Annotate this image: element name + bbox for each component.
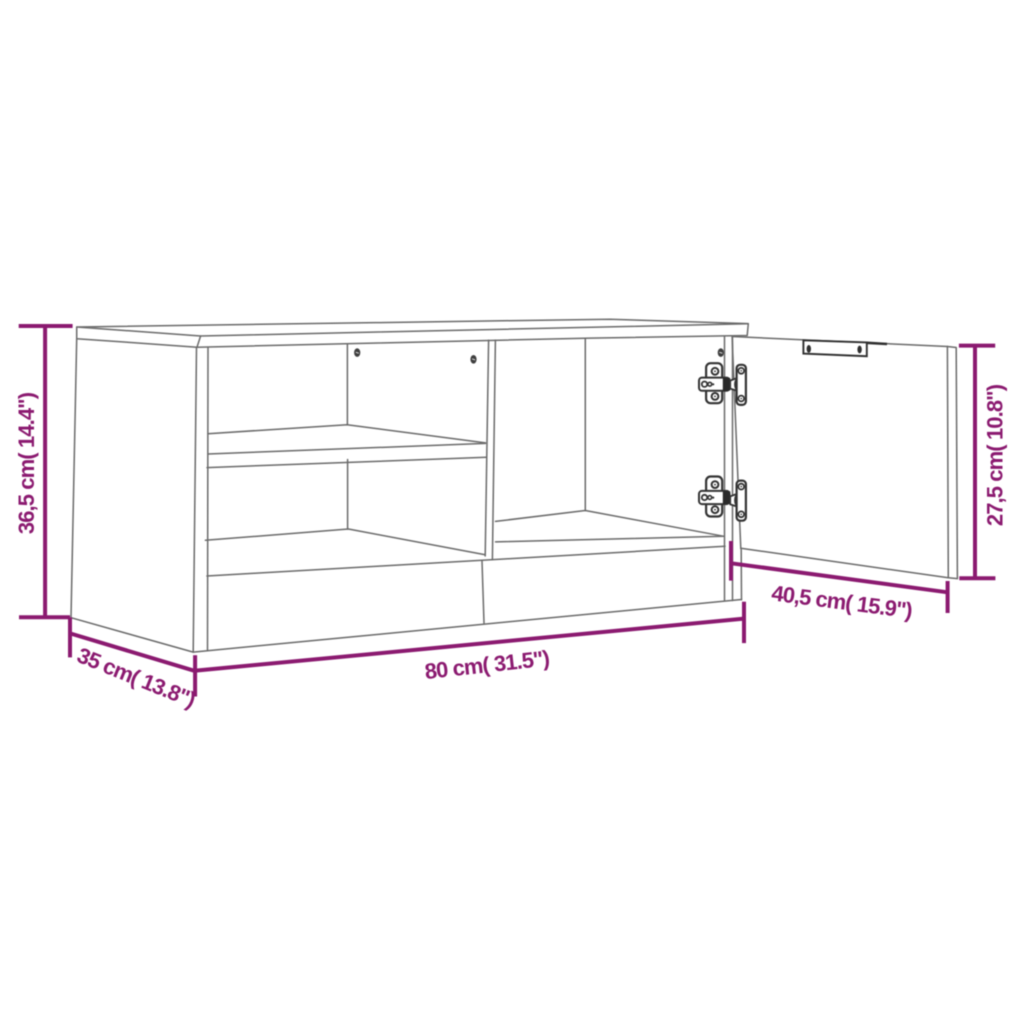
svg-text:27,5 cm( 10.8"): 27,5 cm( 10.8") xyxy=(982,384,1007,526)
svg-text:36,5 cm( 14.4"): 36,5 cm( 14.4") xyxy=(14,392,39,534)
svg-text:80 cm( 31.5"): 80 cm( 31.5") xyxy=(423,645,550,684)
